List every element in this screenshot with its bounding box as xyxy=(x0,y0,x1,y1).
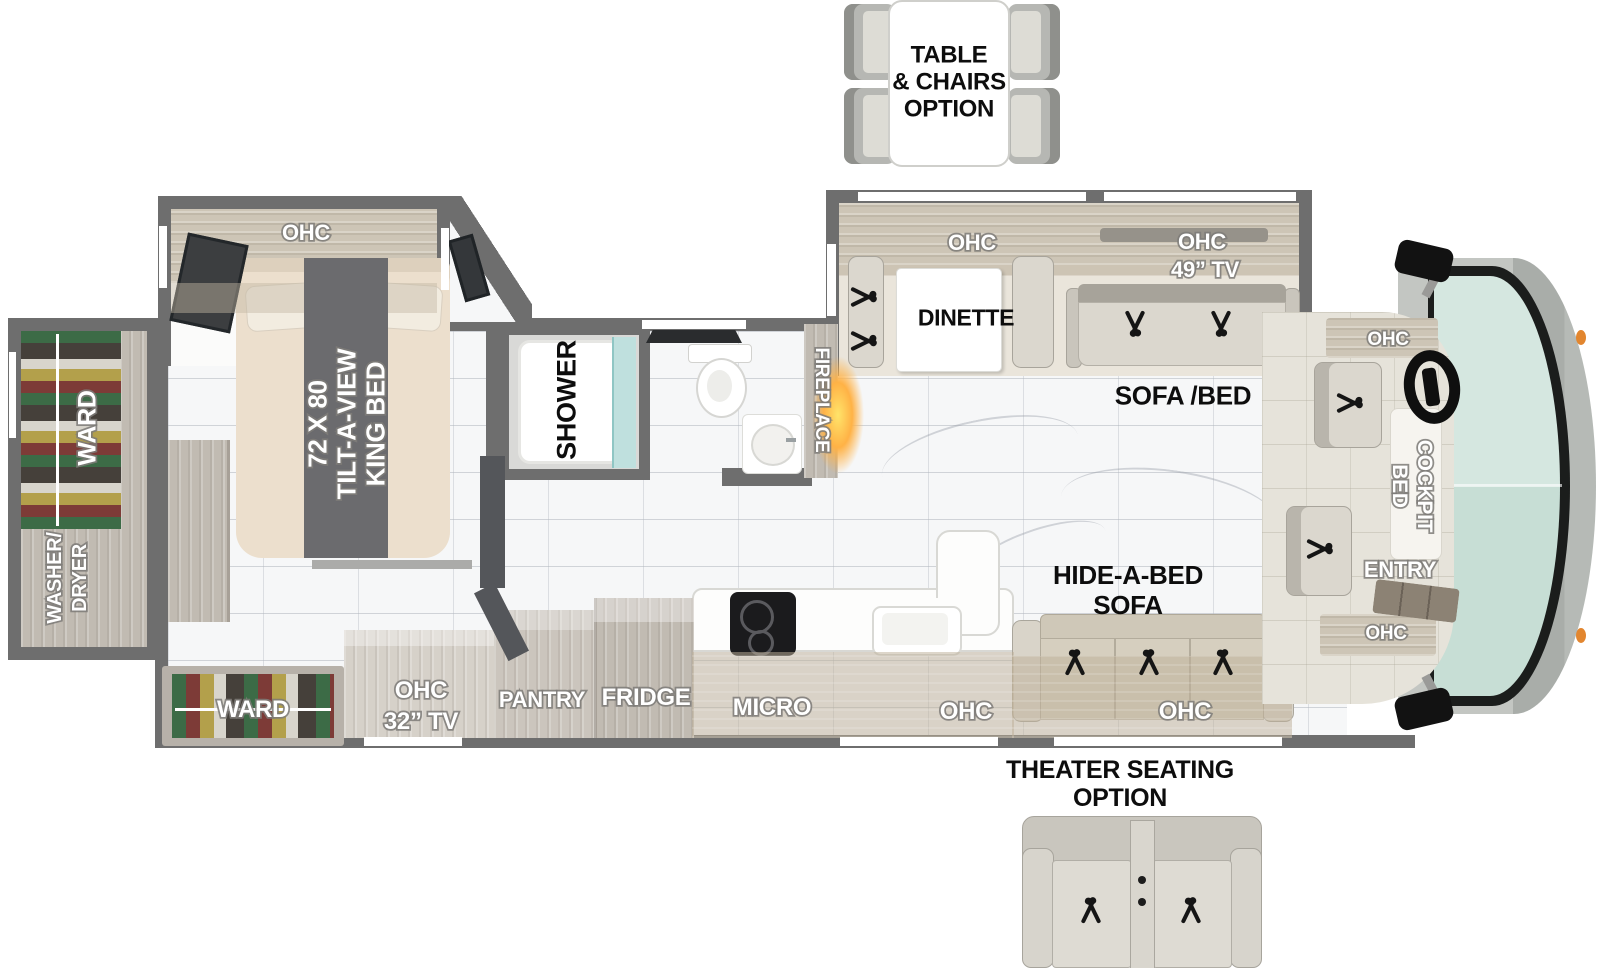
sofa-arm xyxy=(1230,848,1262,968)
ward-bottom-label: WARD xyxy=(217,696,289,724)
window xyxy=(827,244,836,316)
seatbelt-icon xyxy=(1206,648,1240,678)
micro-label: MICRO xyxy=(733,694,812,722)
cab-ohc-bottom-label: OHC xyxy=(1365,623,1406,645)
seatbelt-icon xyxy=(848,280,878,314)
dinette-bench xyxy=(1012,256,1054,368)
fireplace-label: FIREPLACE xyxy=(810,348,832,453)
living-ohc-label: OHC xyxy=(948,230,996,256)
burner-icon xyxy=(740,600,774,634)
fridge xyxy=(594,598,694,738)
table-chairs-option-label: TABLE & CHAIRS OPTION xyxy=(892,42,1006,123)
sofa-back xyxy=(1078,284,1286,304)
washer-dryer-label: WASHER/ DRYER xyxy=(43,532,93,623)
bedroom-threshold xyxy=(312,560,472,569)
shower-label: SHOWER xyxy=(552,340,583,460)
fridge-label: FRIDGE xyxy=(602,684,691,712)
window xyxy=(9,352,16,438)
bedroom-dresser xyxy=(168,440,230,622)
bedroom-ohc-label: OHC xyxy=(282,220,330,246)
window xyxy=(1054,737,1282,746)
kitchen-ohc-label: OHC xyxy=(940,698,992,726)
cupholder-icon xyxy=(1138,898,1146,906)
floorplan: TABLE & CHAIRS OPTION WARD WASHER/ DRYER… xyxy=(0,0,1600,968)
seatbelt-icon xyxy=(1074,896,1108,926)
seatbelt-icon xyxy=(1304,532,1334,566)
seatbelt-icon xyxy=(1174,896,1208,926)
window xyxy=(159,226,167,288)
windshield-seam xyxy=(1452,484,1562,487)
vent-fan xyxy=(646,330,742,343)
window xyxy=(1104,192,1296,201)
ohc-32tv-label: OHC 32” TV xyxy=(384,675,458,737)
hide-a-bed-label: HIDE-A-BED SOFA xyxy=(1053,560,1203,620)
bath-sink xyxy=(751,424,795,466)
kitchen-sink-basin xyxy=(882,613,948,645)
wall xyxy=(1345,735,1415,748)
cab-ohc-top-label: OHC xyxy=(1367,329,1408,351)
cupholder-icon xyxy=(1138,876,1146,884)
theater-seating-option-label: THEATER SEATING OPTION xyxy=(1006,756,1234,812)
sofa-bed-label: SOFA /BED xyxy=(1115,381,1251,412)
ward-label: WARD xyxy=(74,390,103,465)
seatbelt-icon xyxy=(1118,308,1152,338)
marker-light-icon xyxy=(1576,628,1586,643)
pantry-label: PANTRY xyxy=(499,687,585,713)
living-ohc-tv-label: OHC xyxy=(1178,229,1226,255)
theater-console xyxy=(1130,820,1155,968)
wardrobe-clothes xyxy=(21,331,121,529)
shower-glass xyxy=(612,337,636,468)
window xyxy=(840,737,998,746)
sofa-bed-seat xyxy=(1078,302,1286,366)
bath-skylight xyxy=(642,320,746,329)
cockpit-bed-label: COCKPIT BED xyxy=(1387,440,1437,532)
option-chair-icon xyxy=(1008,4,1060,80)
sliding-door xyxy=(480,456,505,588)
seatbelt-icon xyxy=(848,324,878,358)
seatbelt-icon xyxy=(1334,386,1364,420)
king-bed-label: 72 X 80 TILT-A-VIEW KING BED xyxy=(304,349,391,500)
hide-a-bed-ohc-label: OHC xyxy=(1159,698,1211,726)
dinette-label: DINETTE xyxy=(918,305,1014,332)
marker-light-icon xyxy=(1576,330,1586,345)
window xyxy=(858,192,1086,201)
seatbelt-icon xyxy=(1204,308,1238,338)
toilet-seat xyxy=(707,370,732,402)
window xyxy=(441,228,449,290)
entry-label: ENTRY xyxy=(1364,557,1436,583)
seatbelt-icon xyxy=(1132,648,1166,678)
closet-rod xyxy=(56,334,59,526)
sofa-arm xyxy=(1022,848,1054,968)
window xyxy=(364,737,462,746)
seatbelt-icon xyxy=(1058,648,1092,678)
tv-49-label: 49” TV xyxy=(1171,257,1239,283)
option-chair-icon xyxy=(1008,88,1060,164)
faucet-icon xyxy=(786,438,796,442)
